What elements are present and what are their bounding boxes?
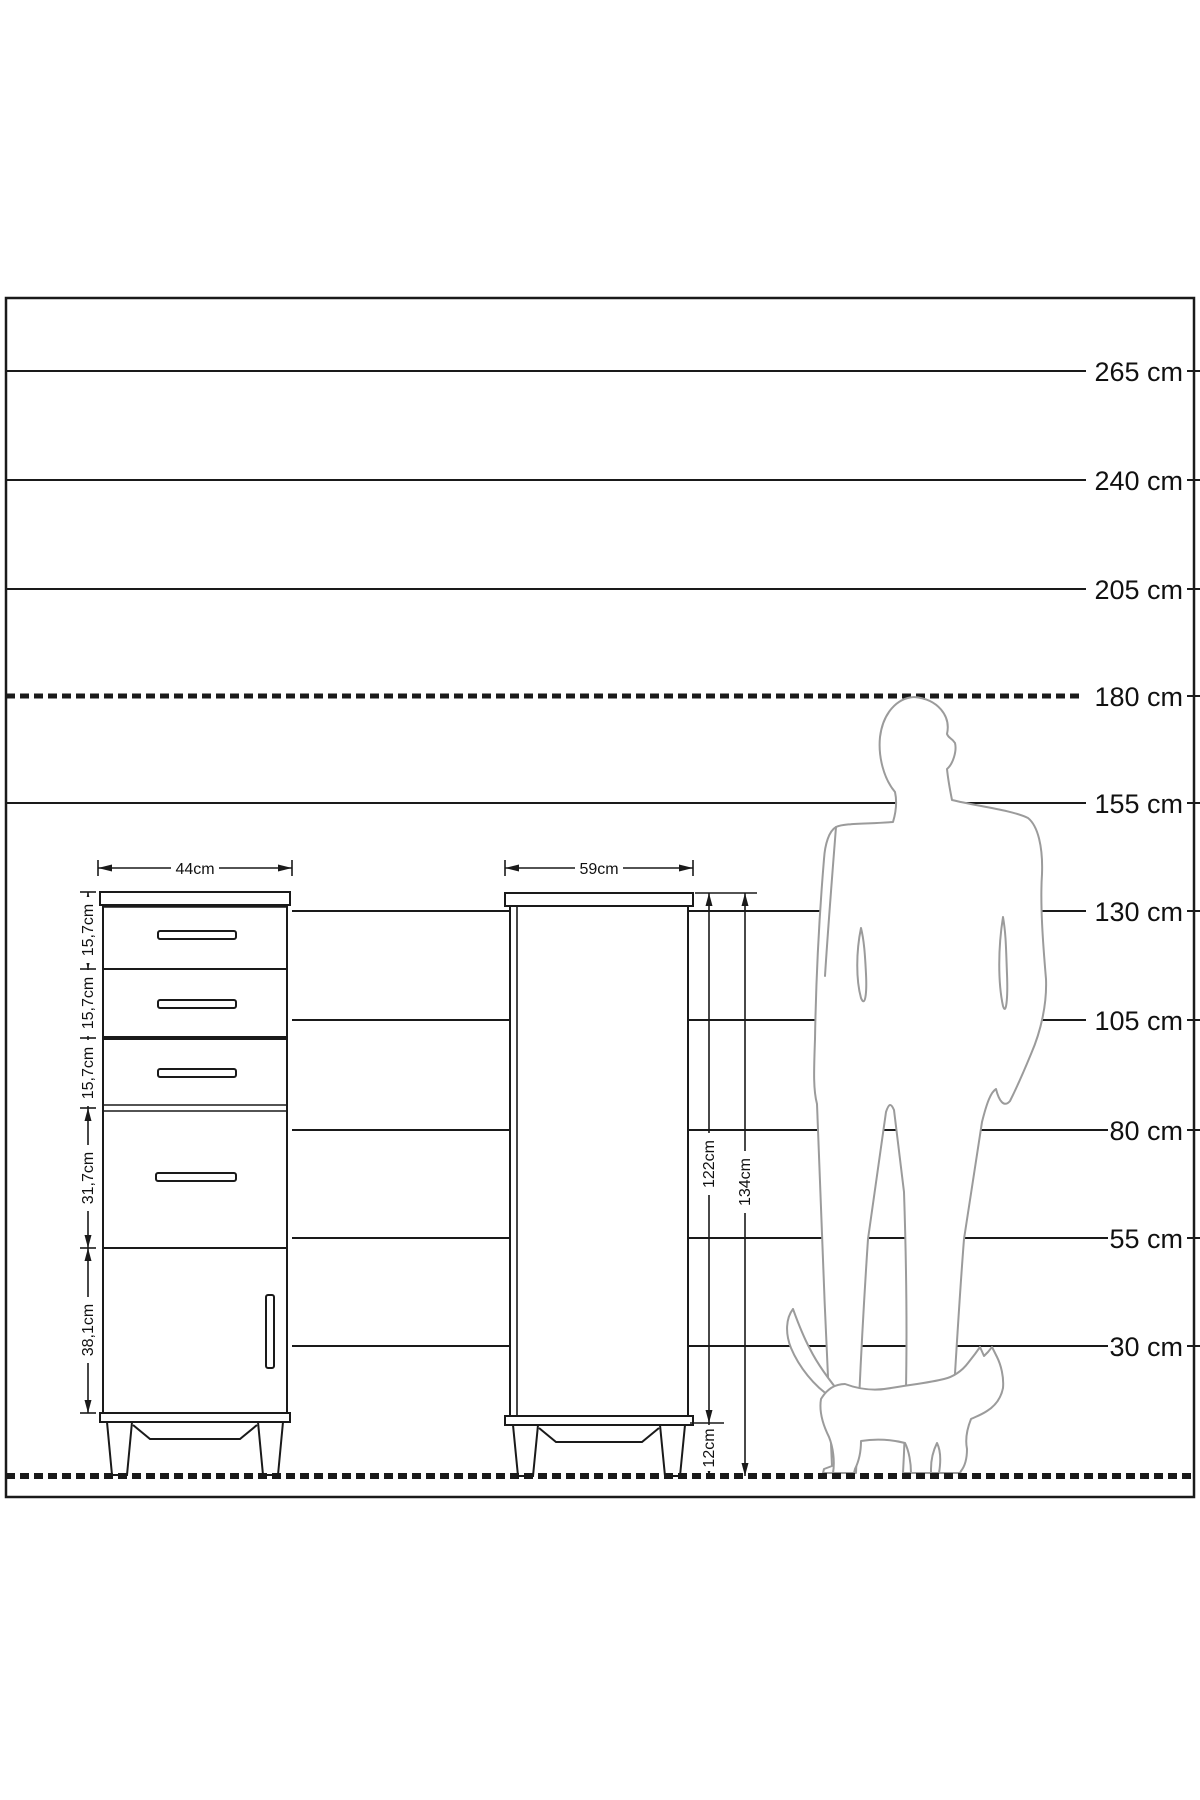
wardrobe-body — [510, 906, 688, 1416]
wardrobe-height-dimensions: 122cm 134cm 12cm — [690, 893, 757, 1476]
cabinet-section-label-1: 15,7cm — [80, 904, 97, 956]
cabinet-section-label-4: 31,7cm — [80, 1152, 97, 1204]
scale-label-130: 130 cm — [1094, 897, 1183, 927]
cabinet-bottom-board — [100, 1413, 290, 1422]
cat-silhouette — [787, 1309, 1003, 1473]
wardrobe-total-height-label: 134cm — [737, 1158, 754, 1206]
wardrobe-leg-left — [513, 1425, 538, 1476]
scale-label-265: 265 cm — [1094, 357, 1183, 387]
cabinet-width-label: 44cm — [175, 861, 214, 878]
scale-label-80: 80 cm — [1109, 1116, 1183, 1146]
wardrobe — [505, 893, 693, 1476]
cabinet-leg-right — [258, 1422, 283, 1475]
drawer-cabinet — [100, 892, 290, 1475]
scale-label-180: 180 cm — [1094, 682, 1183, 712]
scale-label-155: 155 cm — [1094, 789, 1183, 819]
wardrobe-width-dimension: 59cm — [505, 859, 693, 878]
cabinet-width-dimension: 44cm — [98, 859, 292, 878]
wardrobe-bottom-board — [505, 1416, 693, 1425]
drawer-handle-2 — [158, 1000, 236, 1008]
wardrobe-top-board — [505, 893, 693, 906]
wardrobe-leg-height-label: 12cm — [701, 1428, 718, 1467]
scale-label-30: 30 cm — [1109, 1332, 1183, 1362]
scale-label-205: 205 cm — [1094, 575, 1183, 605]
drawer-handle-1 — [158, 931, 236, 939]
cabinet-section-dimensions: 15,7cm 15,7cm 15,7cm 31,7cm 38,1cm — [79, 892, 97, 1413]
cabinet-section-label-5: 38,1cm — [80, 1304, 97, 1356]
scale-label-55: 55 cm — [1109, 1224, 1183, 1254]
diagram-canvas: 265 cm 240 cm 205 cm 180 cm 155 cm 130 c… — [0, 0, 1200, 1800]
cabinet-body — [103, 905, 287, 1413]
cabinet-door-handle — [266, 1295, 274, 1368]
cabinet-leg-rail — [133, 1425, 257, 1439]
wardrobe-body-height-label: 122cm — [701, 1140, 718, 1188]
height-scale-diagram: 265 cm 240 cm 205 cm 180 cm 155 cm 130 c… — [0, 0, 1200, 1800]
wardrobe-width-label: 59cm — [579, 861, 618, 878]
wardrobe-leg-rail — [539, 1428, 659, 1442]
drawer-handle-4 — [156, 1173, 236, 1181]
scale-labels: 265 cm 240 cm 205 cm 180 cm 155 cm 130 c… — [1094, 357, 1183, 1362]
scale-label-240: 240 cm — [1094, 466, 1183, 496]
cabinet-section-label-3: 15,7cm — [80, 1047, 97, 1099]
scale-label-105: 105 cm — [1094, 1006, 1183, 1036]
cabinet-section-label-2: 15,7cm — [80, 977, 97, 1029]
man-outline — [814, 697, 1046, 1473]
cabinet-leg-left — [107, 1422, 132, 1475]
drawer-handle-3 — [158, 1069, 236, 1077]
cabinet-top-board — [100, 892, 290, 905]
wardrobe-leg-right — [660, 1425, 685, 1476]
human-silhouette — [814, 697, 1046, 1473]
